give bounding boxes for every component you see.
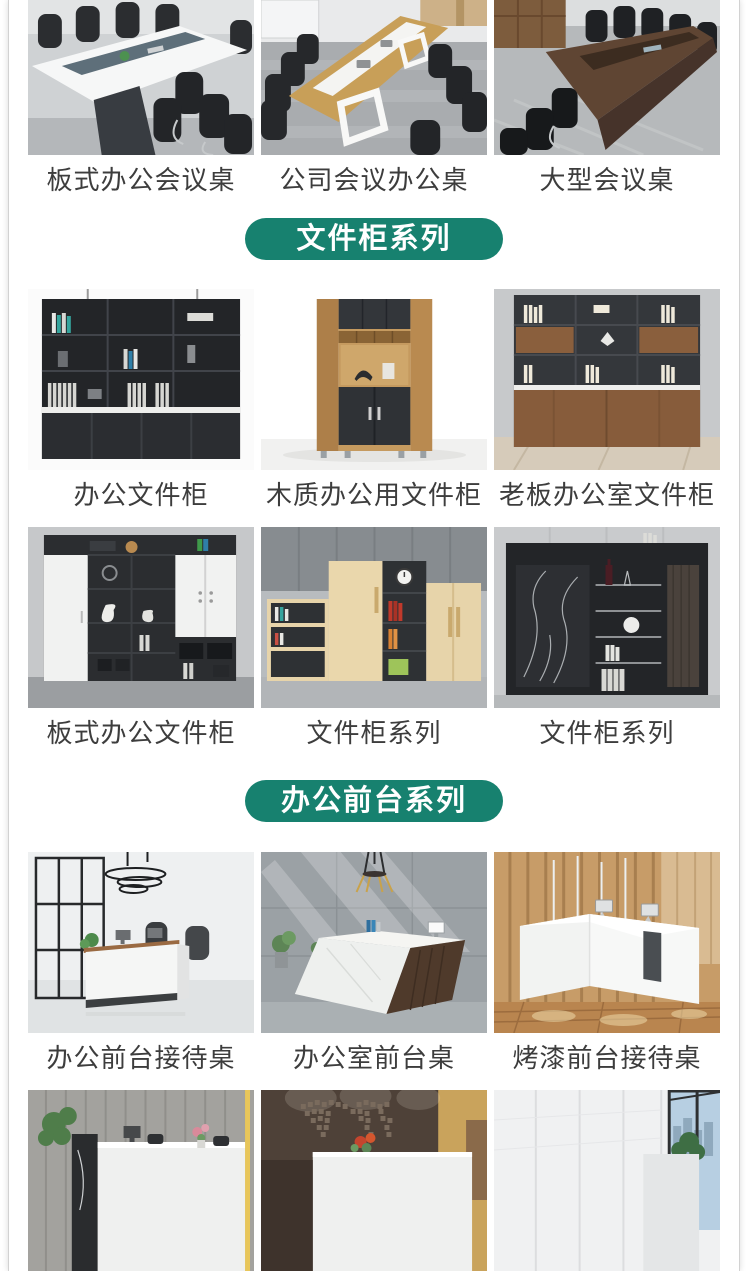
- section-header-reception-series: 办公前台系列: [245, 780, 503, 822]
- product-image-office-reception-desk[interactable]: [28, 852, 254, 1033]
- product-card: 办公文件柜: [28, 289, 254, 527]
- section-header-cabinet-series: 文件柜系列: [245, 218, 503, 260]
- product-card: 办公室前台桌: [261, 852, 487, 1090]
- product-card: 木质办公用文件柜: [261, 289, 487, 527]
- product-card: 公司会议办公桌: [261, 0, 487, 212]
- product-card: [494, 1090, 720, 1271]
- product-image-office-file-cabinet[interactable]: [28, 289, 254, 470]
- product-card: 文件柜系列: [261, 527, 487, 765]
- product-card: [261, 1090, 487, 1271]
- product-image-gray-wood-reception[interactable]: [28, 1090, 254, 1271]
- product-label: 烤漆前台接待桌: [494, 1045, 720, 1073]
- product-row-file-cabinets: 办公文件柜: [28, 289, 720, 527]
- product-label: 文件柜系列: [261, 720, 487, 748]
- product-image-marble-cabinet-series[interactable]: [494, 527, 720, 708]
- product-card: [28, 1090, 254, 1271]
- product-card: 文件柜系列: [494, 527, 720, 765]
- product-label: 板式办公文件柜: [28, 720, 254, 748]
- product-image-large-conference-table[interactable]: [494, 0, 720, 155]
- product-row-cabinet-series: 板式办公文件柜: [28, 527, 720, 765]
- product-image-panel-office-file-cabinet[interactable]: [28, 527, 254, 708]
- product-card: 老板办公室文件柜: [494, 289, 720, 527]
- product-card: 办公前台接待桌: [28, 852, 254, 1090]
- product-image-panel-conference-table[interactable]: [28, 0, 254, 155]
- product-label: 老板办公室文件柜: [494, 482, 720, 510]
- product-image-wooden-file-cabinet[interactable]: [261, 289, 487, 470]
- product-card: 大型会议桌: [494, 0, 720, 212]
- product-label: 板式办公会议桌: [28, 167, 254, 195]
- product-card: 板式办公会议桌: [28, 0, 254, 212]
- product-image-white-panel-reception[interactable]: [494, 1090, 720, 1271]
- product-image-company-conference-table[interactable]: [261, 0, 487, 155]
- product-image-world-map-reception[interactable]: [261, 1090, 487, 1271]
- product-image-boss-office-file-cabinet[interactable]: [494, 289, 720, 470]
- product-label: 文件柜系列: [494, 720, 720, 748]
- catalog-page-frame: 板式办公会议桌: [8, 0, 740, 1271]
- product-card: 板式办公文件柜: [28, 527, 254, 765]
- product-label: 大型会议桌: [494, 167, 720, 195]
- product-label: 公司会议办公桌: [261, 167, 487, 195]
- product-label: 办公文件柜: [28, 482, 254, 510]
- product-image-office-front-desk[interactable]: [261, 852, 487, 1033]
- product-row-reception-desks-partial: [28, 1090, 720, 1271]
- product-row-conference-tables: 板式办公会议桌: [28, 0, 720, 212]
- product-label: 办公前台接待桌: [28, 1045, 254, 1073]
- product-label: 办公室前台桌: [261, 1045, 487, 1073]
- product-image-lacquered-reception-desk[interactable]: [494, 852, 720, 1033]
- product-card: 烤漆前台接待桌: [494, 852, 720, 1090]
- product-row-reception-desks: 办公前台接待桌: [28, 852, 720, 1090]
- product-label: 木质办公用文件柜: [261, 482, 487, 510]
- product-image-maple-cabinet-series[interactable]: [261, 527, 487, 708]
